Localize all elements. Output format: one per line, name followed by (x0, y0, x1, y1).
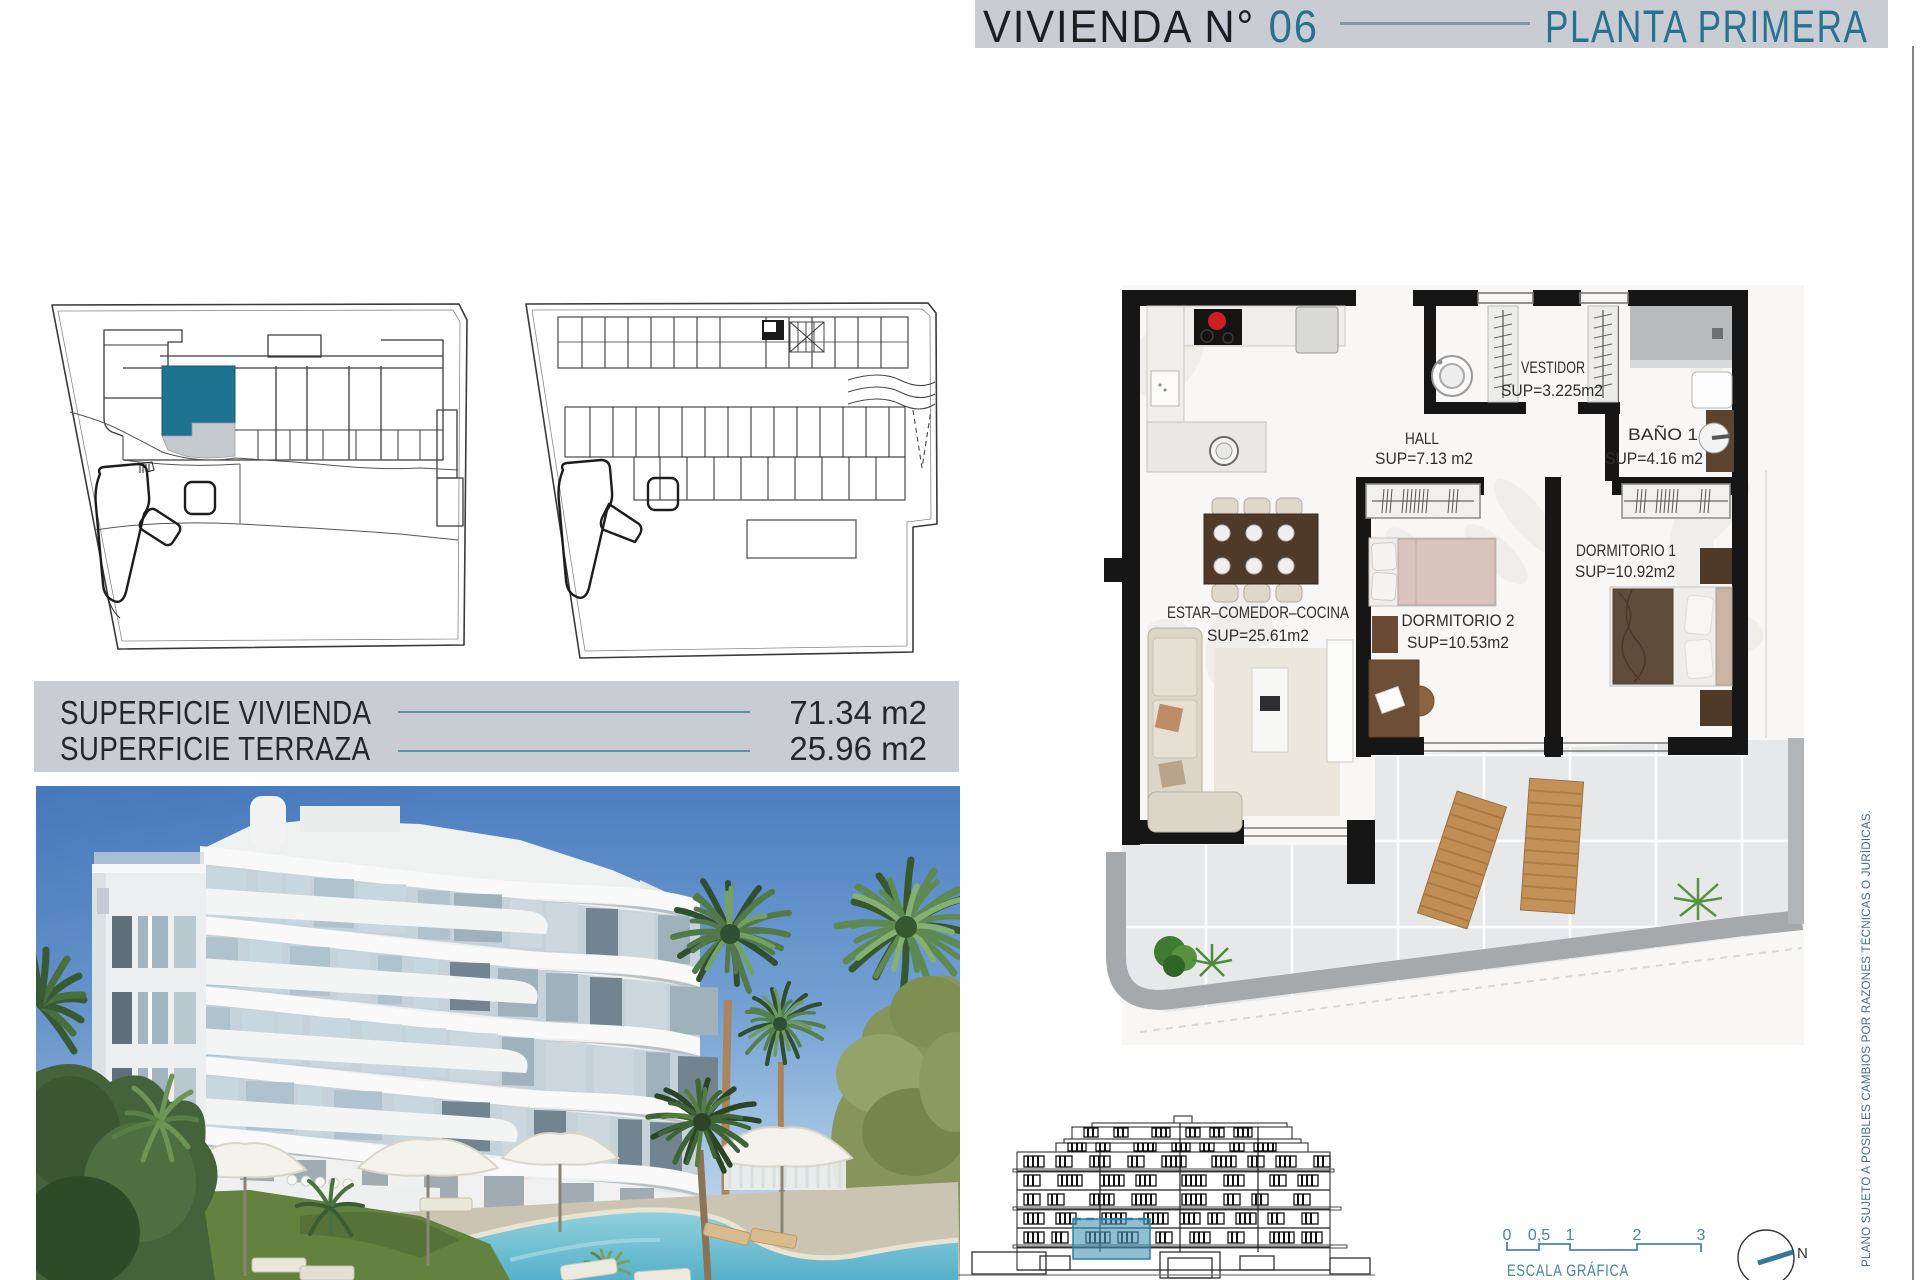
svg-text:SUP=4.16 m2: SUP=4.16 m2 (1605, 449, 1703, 468)
svg-text:SUP=10.53m2: SUP=10.53m2 (1407, 633, 1509, 652)
svg-text:0,5: 0,5 (1528, 1227, 1550, 1244)
svg-text:DORMITORIO 1: DORMITORIO 1 (1576, 541, 1676, 560)
svg-text:ESTAR–COMEDOR–COCINA: ESTAR–COMEDOR–COCINA (1167, 603, 1350, 622)
svg-text:N: N (1797, 1245, 1808, 1262)
svg-text:2: 2 (1633, 1227, 1642, 1244)
svg-text:0: 0 (1503, 1227, 1512, 1244)
svg-text:DORMITORIO 2: DORMITORIO 2 (1402, 611, 1515, 630)
svg-text:SUP=10.92m2: SUP=10.92m2 (1575, 562, 1675, 581)
svg-text:ESCALA GRÁFICA: ESCALA GRÁFICA (1507, 1261, 1629, 1280)
svg-text:1: 1 (1566, 1227, 1575, 1244)
svg-text:VESTIDOR: VESTIDOR (1521, 358, 1585, 377)
svg-text:SUP=3.225m2: SUP=3.225m2 (1501, 381, 1603, 400)
svg-text:SUP=25.61m2: SUP=25.61m2 (1207, 626, 1309, 645)
svg-text:SUP=7.13 m2: SUP=7.13 m2 (1375, 449, 1473, 468)
svg-text:BAÑO 1: BAÑO 1 (1628, 425, 1698, 444)
svg-text:3: 3 (1697, 1227, 1706, 1244)
svg-text:HALL: HALL (1405, 429, 1439, 448)
